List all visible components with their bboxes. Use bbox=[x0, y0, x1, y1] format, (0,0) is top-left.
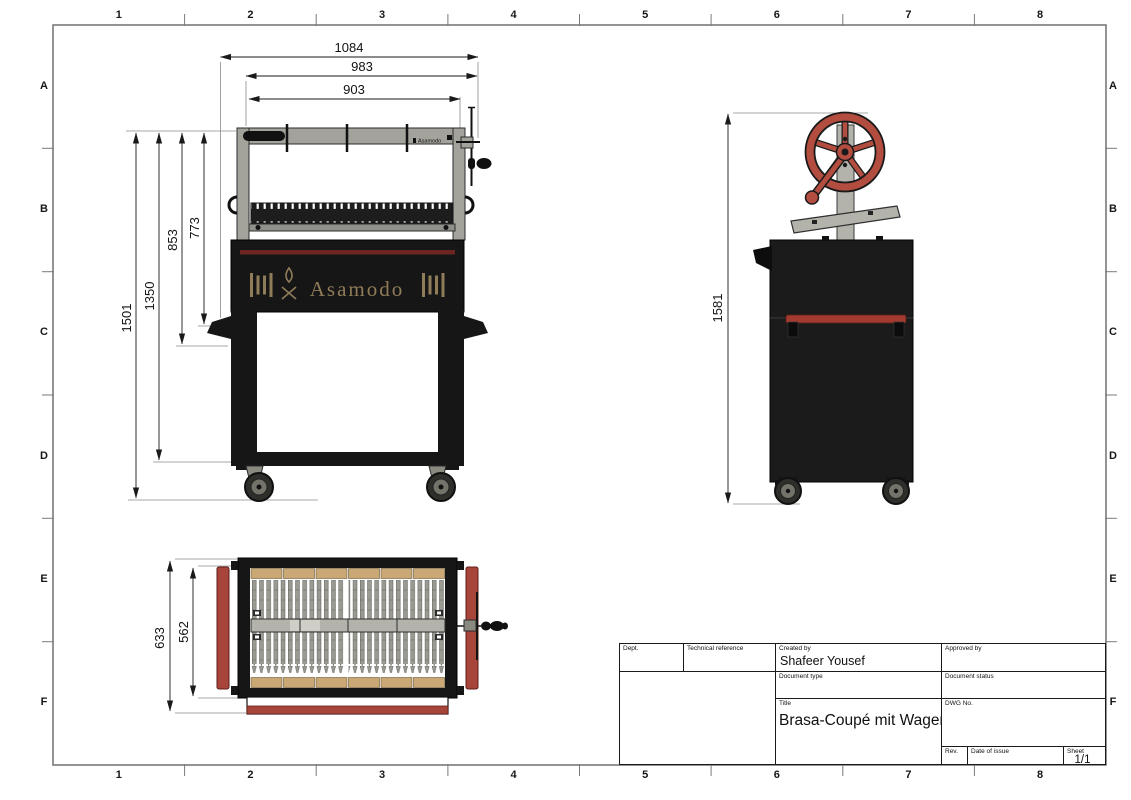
created-by-value: Shafeer Yousef bbox=[780, 654, 865, 668]
dim-height-1581: 1581 bbox=[710, 294, 725, 323]
title-block: Dept. Technical reference Created by Sha… bbox=[619, 643, 1106, 765]
title-value: Brasa-Coupé mit Wagen bbox=[779, 712, 948, 730]
grid-row-label-right: D bbox=[1109, 450, 1117, 462]
grid-row-label-right: E bbox=[1109, 573, 1116, 585]
grid-row-label-right: C bbox=[1109, 326, 1117, 338]
title-cell: Title Brasa-Coupé mit Wagen bbox=[775, 698, 942, 765]
document-type-label: Document type bbox=[779, 673, 823, 681]
firebox-stripe bbox=[240, 250, 455, 255]
front-caster-left bbox=[245, 466, 273, 501]
title-label: Title bbox=[779, 700, 791, 708]
document-status-label: Document status bbox=[945, 673, 994, 681]
crank-knob bbox=[806, 191, 819, 204]
side-body bbox=[753, 236, 913, 485]
dwg-no-label: DWG No. bbox=[945, 700, 973, 708]
logo-text: Asamodo bbox=[310, 277, 405, 301]
front-grate bbox=[229, 197, 473, 231]
side-red-handle bbox=[786, 315, 906, 323]
dept-label: Dept. bbox=[623, 645, 639, 653]
grid-col-label-top: 8 bbox=[1037, 9, 1043, 21]
grid-col-label-bottom: 7 bbox=[905, 769, 911, 781]
top-view bbox=[217, 558, 508, 714]
rev-cell: Rev. bbox=[941, 746, 968, 765]
grid-col-label-bottom: 3 bbox=[379, 769, 385, 781]
grid-row-label-left: C bbox=[40, 326, 48, 338]
drawing-sheet: 1084 983 903 1501 1350 853 773 Asamodo bbox=[0, 0, 1131, 800]
title-block-empty-cell bbox=[619, 671, 776, 765]
created-by-cell: Created by Shafeer Yousef bbox=[775, 643, 942, 672]
grid-row-label-right: A bbox=[1109, 80, 1117, 92]
grid-row-label-right: B bbox=[1109, 203, 1117, 215]
dim-depth-633: 633 bbox=[152, 627, 167, 649]
grid-row-label-left: A bbox=[40, 80, 48, 92]
dim-height-853: 853 bbox=[165, 229, 180, 251]
document-status-cell: Document status bbox=[941, 671, 1106, 699]
technical-reference-label: Technical reference bbox=[687, 645, 743, 653]
dim-height-773: 773 bbox=[187, 217, 202, 239]
top-shelf bbox=[247, 697, 448, 714]
dwg-no-cell: DWG No. bbox=[941, 698, 1106, 747]
grid-col-label-top: 1 bbox=[116, 9, 122, 21]
created-by-label: Created by bbox=[779, 645, 811, 653]
technical-reference-cell: Technical reference bbox=[683, 643, 776, 672]
dept-cell: Dept. bbox=[619, 643, 684, 672]
grid-col-label-top: 4 bbox=[511, 9, 517, 21]
grid-col-label-top: 2 bbox=[247, 9, 253, 21]
grid-col-label-bottom: 2 bbox=[247, 769, 253, 781]
dim-height-1350: 1350 bbox=[142, 282, 157, 311]
dim-depth-562: 562 bbox=[176, 621, 191, 643]
side-hand-wheel bbox=[806, 113, 885, 205]
front-firebox: Asamodo bbox=[231, 240, 464, 312]
grid-row-label-right: F bbox=[1110, 696, 1117, 708]
date-of-issue-label: Date of issue bbox=[971, 748, 1009, 756]
dim-width-983: 983 bbox=[351, 59, 373, 74]
grid-col-label-top: 5 bbox=[642, 9, 648, 21]
date-of-issue-cell: Date of issue bbox=[967, 746, 1064, 765]
grid-col-label-bottom: 1 bbox=[116, 769, 122, 781]
right-hook bbox=[465, 197, 473, 213]
side-view bbox=[753, 113, 913, 505]
rev-label: Rev. bbox=[945, 748, 958, 756]
front-cart bbox=[207, 310, 488, 470]
dim-height-1501: 1501 bbox=[119, 304, 134, 333]
grid-row-label-left: F bbox=[41, 696, 48, 708]
top-crank bbox=[455, 592, 508, 660]
right-handle bbox=[464, 316, 488, 339]
left-handle bbox=[207, 316, 231, 339]
front-view: Asamodo bbox=[207, 107, 492, 501]
document-type-cell: Document type bbox=[775, 671, 942, 699]
sheet-value: 1/1 bbox=[1064, 754, 1101, 766]
grid-col-label-top: 7 bbox=[905, 9, 911, 21]
front-caster-right bbox=[427, 466, 455, 501]
dim-width-overall: 1084 bbox=[335, 40, 364, 55]
grid-row-label-left: E bbox=[40, 573, 47, 585]
grid-col-label-bottom: 8 bbox=[1037, 769, 1043, 781]
grid-row-label-left: D bbox=[40, 450, 48, 462]
approved-by-label: Approved by bbox=[945, 645, 982, 653]
grid-col-label-bottom: 6 bbox=[774, 769, 780, 781]
top-bar-brand-text: Asamodo bbox=[418, 139, 441, 145]
spit-grip bbox=[243, 131, 285, 141]
grid-col-label-bottom: 5 bbox=[642, 769, 648, 781]
approved-by-cell: Approved by bbox=[941, 643, 1106, 672]
sheet-cell: Sheet 1/1 bbox=[1063, 746, 1106, 765]
left-hook bbox=[229, 197, 237, 213]
side-caster-left bbox=[775, 477, 801, 504]
side-caster-right bbox=[883, 477, 909, 504]
side-corner-handle bbox=[753, 246, 772, 271]
dim-width-903: 903 bbox=[343, 82, 365, 97]
grid-col-label-top: 3 bbox=[379, 9, 385, 21]
top-left-red-handle bbox=[217, 567, 229, 689]
grid-col-label-bottom: 4 bbox=[511, 769, 517, 781]
grid-row-label-left: B bbox=[40, 203, 48, 215]
grid-col-label-top: 6 bbox=[774, 9, 780, 21]
